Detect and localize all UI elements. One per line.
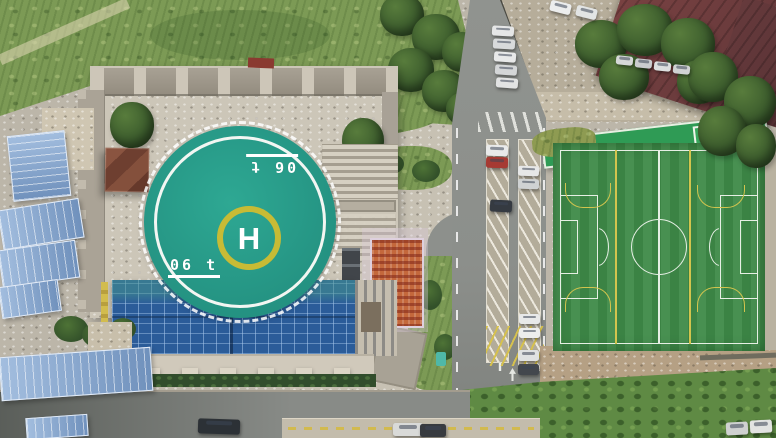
crosswalk-markings [478,112,544,132]
car-white [726,421,749,435]
field-yellow-line-1 [615,150,617,344]
car-white [519,314,540,324]
red-bench [248,58,274,69]
grass-dark-patch [150,10,330,60]
road-arrow-2 [509,368,516,381]
car-white [492,25,514,36]
shed-roof-1 [7,130,72,202]
car-silver [518,179,539,190]
car-white [519,328,540,338]
aerial-photo-canvas: H 06 t 06 t [0,0,776,438]
soccer-field [553,143,765,351]
car-dark [490,199,513,212]
goal-box-right [740,220,758,274]
car-white [393,423,423,436]
helipad-letter: H [238,223,260,254]
dirt-track-stripe [0,0,130,65]
field-yellow-goalbox-br [697,287,745,312]
tree [736,124,776,168]
helipad-circle: H 06 t 06 t [144,126,336,318]
field-east-path [765,150,776,350]
car-dark [518,364,539,375]
car-white [635,58,653,69]
car-white [494,51,517,63]
shed-roof-6 [25,414,88,438]
tree-cluster-right-edge [684,48,776,173]
road-edge-dashes-left [456,128,458,430]
car-white [673,64,691,75]
car-white [486,145,508,157]
helipad-h-circle: H [217,206,281,270]
field-yellow-line-2 [689,150,691,344]
parapet-wall-north [92,68,396,96]
car-white [518,166,539,177]
pavilion-roof [105,148,150,193]
atrium-annex [355,280,397,356]
car-white [750,419,773,433]
car-dark [198,418,240,434]
annex-window [361,302,381,332]
helipad-weight-marking-top: 06 t [246,154,298,176]
ac-unit-2 [342,264,360,280]
car-white [493,38,515,49]
ac-unit-1 [342,248,360,264]
field-center-circle [631,219,687,275]
field-yellow-goalbox-bl [565,287,611,312]
teal-object [436,352,446,366]
car-red [486,157,508,169]
car-white [495,64,518,76]
goal-box-left [560,220,578,274]
car-white [518,350,539,361]
plaza-tree-west [110,102,154,148]
car-dark [420,424,446,437]
helipad-weight-marking-bottom: 06 t [168,256,220,278]
car-white [496,77,519,89]
bush [412,160,440,182]
car-white [616,55,634,66]
car-white [654,61,672,72]
